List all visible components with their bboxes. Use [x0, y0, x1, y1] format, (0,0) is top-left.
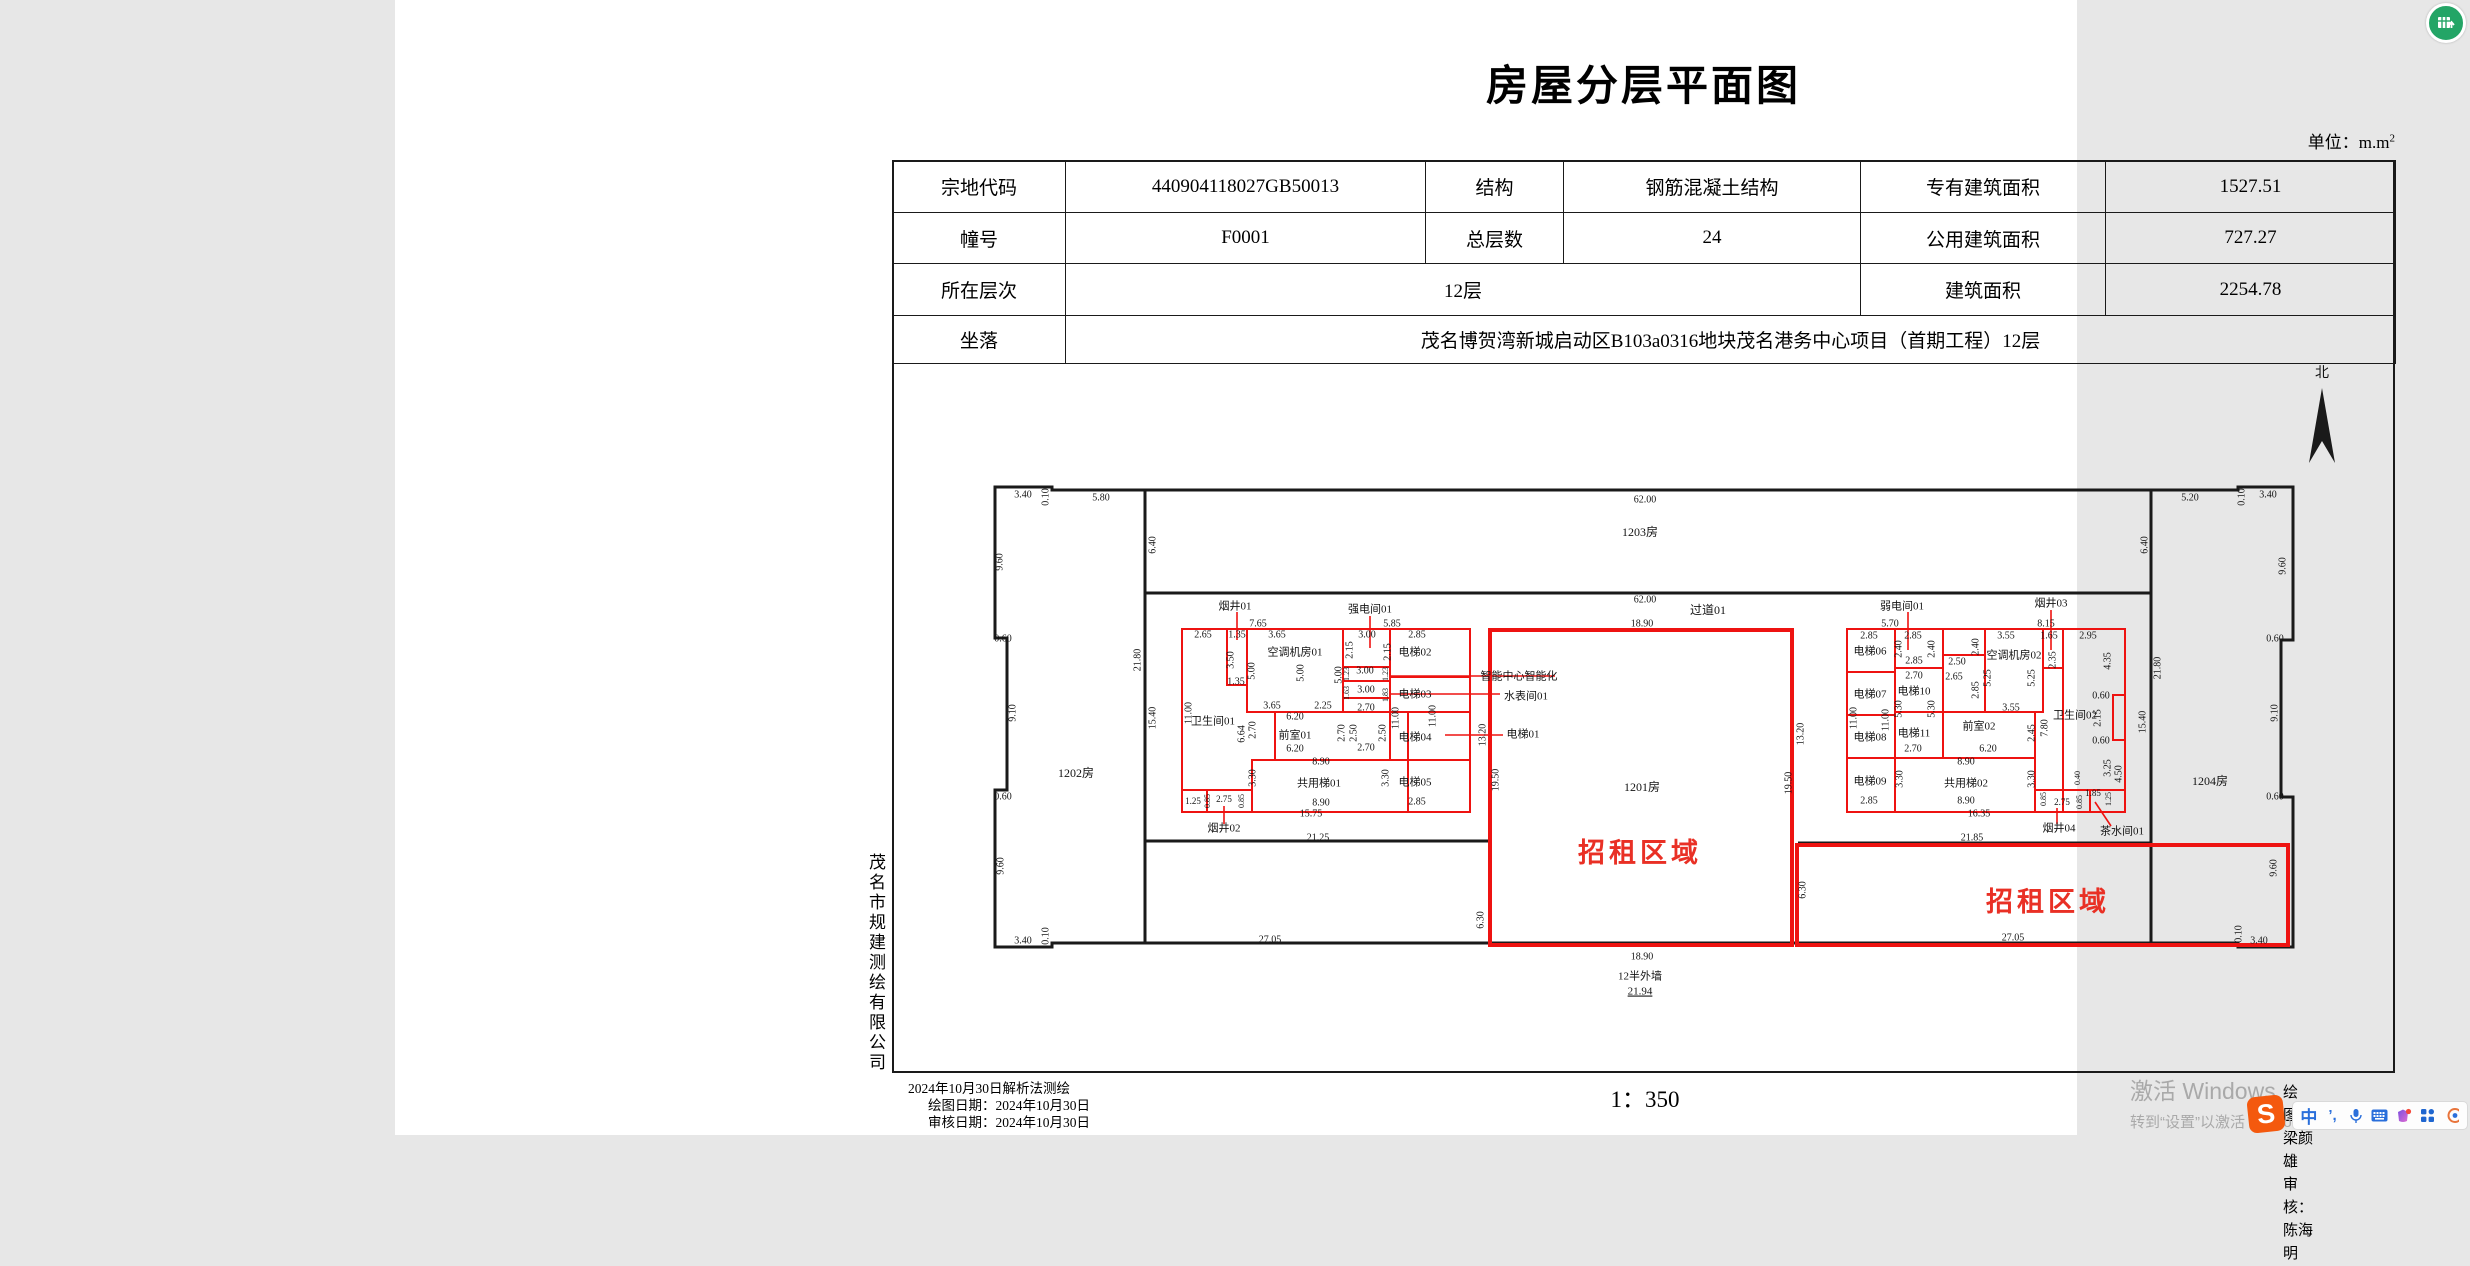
- review-date-line: 审核日期：2024年10月30日: [908, 1114, 1090, 1131]
- label-total-floors: 总层数: [1426, 213, 1564, 264]
- chinese-mode-toggle[interactable]: 中: [2298, 1104, 2320, 1128]
- map-scale: 1：350: [1535, 1080, 1755, 1114]
- value-building-no: F0001: [1066, 213, 1426, 264]
- sogou-ime-logo[interactable]: S: [2246, 1094, 2286, 1134]
- value-building-area: 2254.78: [2106, 264, 2396, 316]
- keyboard-icon: [2371, 1109, 2388, 1122]
- label-building-area: 建筑面积: [1861, 264, 2106, 316]
- checker-name: 审核：陈海明: [2283, 1174, 2313, 1266]
- value-exclusive-area: 1527.51: [2106, 161, 2396, 213]
- label-shared-area: 公用建筑面积: [1861, 213, 2106, 264]
- voice-input-button[interactable]: [2345, 1104, 2367, 1128]
- label-parcel-code: 宗地代码: [893, 161, 1066, 213]
- sogou-s: S: [2255, 1098, 2276, 1131]
- ime-toolbar: 中 ’,: [2292, 1101, 2468, 1130]
- label-location: 坐落: [893, 316, 1066, 364]
- skin-center-button[interactable]: [2393, 1104, 2415, 1128]
- unit-label: 单位：m.m2: [2135, 128, 2395, 153]
- value-floor-level: 12层: [1066, 264, 1861, 316]
- document-sheet: 房屋分层平面图 单位：m.m2 宗地代码 440904118027GB50013…: [395, 0, 2077, 1135]
- draw-date-line: 绘图日期：2024年10月30日: [908, 1097, 1090, 1114]
- value-structure: 钢筋混凝土结构: [1564, 161, 1861, 213]
- virtual-keyboard-button[interactable]: [2369, 1104, 2391, 1128]
- label-exclusive-area: 专有建筑面积: [1861, 161, 2106, 213]
- microphone-icon: [2349, 1108, 2363, 1124]
- page-title: 房屋分层平面图: [892, 52, 2395, 113]
- survey-company-name: 茂名市规建测绘有限公司: [863, 853, 888, 1079]
- circle-badge-icon: [2444, 1108, 2459, 1123]
- survey-method-line: 2024年10月30日解析法测绘: [908, 1080, 1090, 1097]
- value-shared-area: 727.27: [2106, 213, 2396, 264]
- label-building-no: 幢号: [893, 213, 1066, 264]
- ime-more-button[interactable]: [2440, 1104, 2462, 1128]
- table-export-icon: [2436, 13, 2456, 33]
- survey-dates: 2024年10月30日解析法测绘 绘图日期：2024年10月30日 审核日期：2…: [908, 1080, 1090, 1131]
- toolbox-button[interactable]: [2416, 1104, 2438, 1128]
- value-location: 茂名博贺湾新城启动区B103a0316地块茂名港务中心项目（首期工程）12层: [1066, 316, 2396, 364]
- skin-icon: [2395, 1108, 2412, 1124]
- parcel-info-table: 宗地代码 440904118027GB50013 结构 钢筋混凝土结构 专有建筑…: [892, 160, 2396, 364]
- table-export-button[interactable]: [2426, 3, 2466, 43]
- label-floor-level: 所在层次: [893, 264, 1066, 316]
- apps-grid-icon: [2420, 1108, 2435, 1123]
- value-total-floors: 24: [1564, 213, 1861, 264]
- punctuation-toggle[interactable]: ’,: [2322, 1104, 2344, 1128]
- value-parcel-code: 440904118027GB50013: [1066, 161, 1426, 213]
- label-structure: 结构: [1426, 161, 1564, 213]
- desktop: { "page": { "title": "房屋分层平面图", "unit_pr…: [0, 0, 2470, 1165]
